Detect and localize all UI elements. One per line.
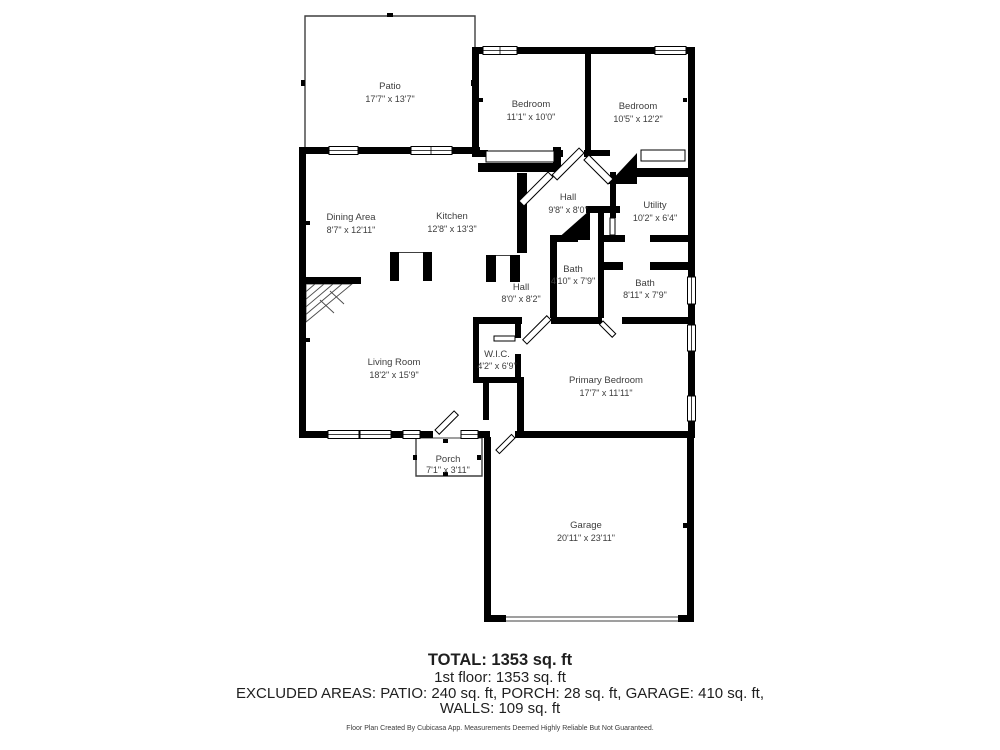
room-dims-hall-top: 9'8" x 8'0" [548, 205, 587, 215]
room-dims-bath1: 4'10" x 7'9" [551, 276, 595, 286]
room-name-bedroom1: Bedroom [512, 99, 551, 110]
room-dims-bedroom2: 10'5" x 12'2" [613, 114, 662, 124]
utility-door-leaf [610, 218, 615, 235]
room-dims-garage: 20'11" x 23'11" [557, 533, 615, 543]
bedroom2-closet-doors [641, 150, 685, 161]
walls-layer [299, 47, 695, 622]
room-dims-patio: 17'7" x 13'7" [365, 94, 414, 104]
room-name-kitchen: Kitchen [436, 211, 468, 222]
bath-door-leaf [599, 321, 615, 337]
wic-door-leaf [494, 336, 515, 341]
room-name-bath1: Bath [563, 264, 583, 275]
floor-plan-page: Patio 17'7" x 13'7" Bedroom 11'1" x 10'0… [0, 0, 1000, 750]
room-dims-utility: 10'2" x 6'4" [633, 213, 677, 223]
room-name-porch: Porch [436, 454, 461, 465]
first-floor-area-text: 1st floor: 1353 sq. ft [0, 670, 1000, 686]
room-dims-living: 18'2" x 15'9" [369, 370, 418, 380]
walls-area-text: WALLS: 109 sq. ft [0, 701, 1000, 717]
total-area-text: TOTAL: 1353 sq. ft [0, 651, 1000, 670]
room-dims-dining: 8'7" x 12'11" [327, 225, 376, 235]
floor-plan-canvas: Patio 17'7" x 13'7" Bedroom 11'1" x 10'0… [0, 0, 1000, 750]
room-name-bedroom2: Bedroom [619, 101, 658, 112]
room-name-hall-top: Hall [560, 192, 576, 203]
room-name-wic: W.I.C. [484, 349, 510, 360]
room-name-primary: Primary Bedroom [569, 375, 643, 386]
credit-line: Floor Plan Created By Cubicasa App. Meas… [0, 725, 1000, 732]
primary-bedroom-door-leaf [523, 316, 551, 344]
room-dims-bath2: 8'11" x 7'9" [623, 290, 667, 300]
room-name-dining: Dining Area [326, 212, 376, 223]
room-name-bath2: Bath [635, 278, 655, 289]
front-door-leaf [435, 411, 458, 434]
room-dims-primary: 17'7" x 11'11" [579, 388, 632, 398]
room-name-living: Living Room [368, 357, 421, 368]
bedroom1-closet-doors [486, 151, 554, 162]
room-name-patio: Patio [379, 81, 401, 92]
room-name-garage: Garage [570, 520, 602, 531]
garage-entry-door-leaf [496, 434, 515, 453]
room-name-utility: Utility [643, 200, 666, 211]
excluded-areas-text: EXCLUDED AREAS: PATIO: 240 sq. ft, PORCH… [0, 686, 1000, 702]
room-dims-bedroom1: 11'1" x 10'0" [507, 112, 556, 122]
room-dims-kitchen: 12'8" x 13'3" [427, 224, 476, 234]
stair-hatch [306, 284, 352, 322]
bedroom2-door-leaf [584, 155, 613, 184]
opening-lines [390, 253, 520, 256]
room-dims-porch: 7'1" x 3'11" [426, 465, 470, 475]
room-dims-wic: 4'2" x 6'9" [477, 361, 516, 371]
room-name-hall-bottom: Hall [513, 282, 529, 293]
area-summary: TOTAL: 1353 sq. ft 1st floor: 1353 sq. f… [0, 651, 1000, 717]
room-dims-hall-bottom: 8'0" x 8'2" [501, 294, 540, 304]
